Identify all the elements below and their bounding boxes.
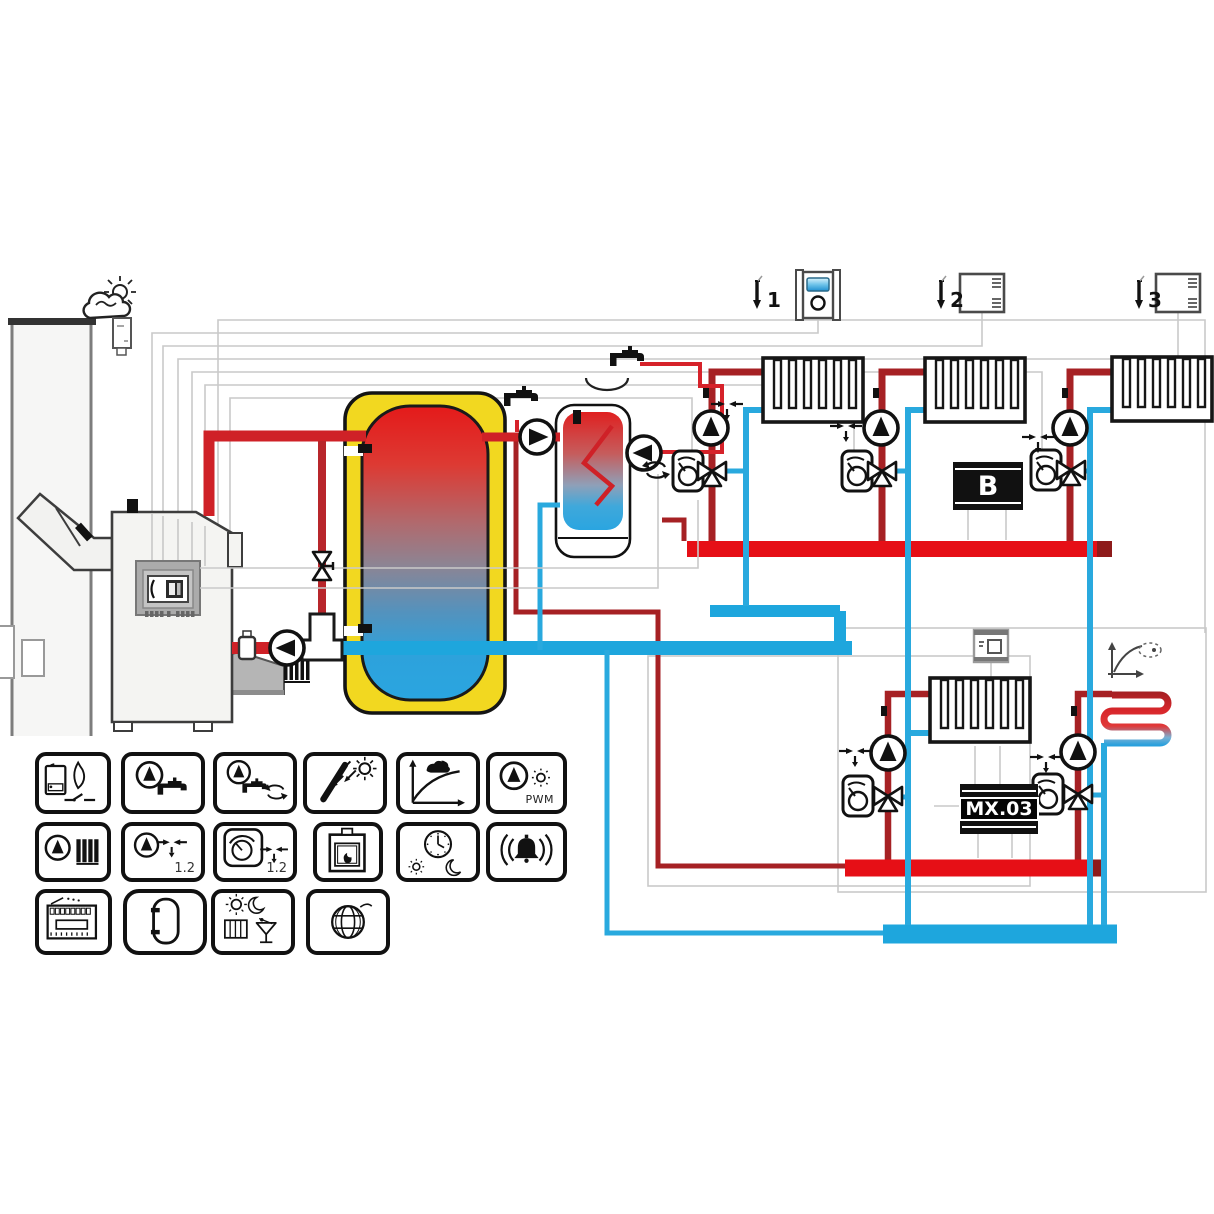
tile-internet [306,889,390,955]
circuit2-pump [864,411,898,445]
radiator-4 [930,678,1030,742]
tile-boiler-flame-contact [35,752,111,814]
circuit4-servo [843,776,873,816]
room-sensor-2 [937,274,1004,312]
controller-module-icon [39,893,108,951]
dhw-sensor [573,410,581,424]
tile-dhw-circulation [213,752,297,814]
room-sensor-3 [1135,274,1200,312]
boiler-sensor [127,499,138,513]
buffer-tank-icon [127,893,203,951]
comfort-day-night-party-icon [215,893,291,951]
tile-buffer [123,889,207,955]
heating-curve-icon [400,756,476,810]
radiator-1 [763,358,863,422]
hydraulic-diagram: B MX.03 1 2 3 [0,0,1214,1214]
extension-module-label: MX.03 [959,797,1038,822]
shut-off-valve [313,552,333,580]
alarm-icon [490,826,563,878]
heating-pump-radiator-icon [39,826,107,878]
room-controller-display [807,278,829,291]
return-fitting [239,631,255,659]
mix-label-1: 1.2 [174,861,195,876]
tile-comfort [211,889,295,955]
dhw-pump-circulation-icon [217,756,293,810]
controller-box-b-label: B [978,471,999,502]
sensor-2-number: 2 [950,288,964,312]
tile-pump-pwm: PWM [486,752,567,814]
diagram-canvas [0,0,1214,1214]
tap-icon-1 [504,386,538,406]
room-stat-lower [974,630,1008,662]
anti-condensation-fitting [302,614,342,660]
radiator-2 [925,358,1025,422]
circuit1-pump [694,411,728,445]
tile-fireplace [313,822,383,882]
circuit5-pump [1061,735,1095,769]
circuit3-pump [1053,411,1087,445]
tile-alarm [486,822,567,882]
dhw-charge-pump [520,420,554,454]
tile-heating-curve [396,752,480,814]
floor-heating-coil [1104,695,1168,743]
dhw-tank [556,405,630,557]
vent-icon-2 [830,423,862,442]
tile-thermostat-mix: 1.2 [213,822,297,882]
sensor-1-number: 1 [767,288,781,312]
buffer-tank [345,393,505,713]
circuit4-pump [871,736,905,770]
basin-icon [586,378,628,390]
tile-dhw-pump [121,752,205,814]
clock-day-night-icon [400,826,476,878]
sensor-3-number: 3 [1148,288,1162,312]
extension-module-box: MX.03 [960,784,1038,834]
weather-icon [84,276,136,318]
solar-collector-icon [307,756,383,810]
vent-icon-5 [1030,754,1062,773]
radiator-3 [1112,357,1212,421]
tile-pump-radiator [35,822,111,882]
internet-globe-icon [310,893,386,951]
pwm-label: PWM [525,793,554,806]
fireplace-icon [317,826,379,878]
vent-icon-4 [839,748,871,767]
tile-clock [396,822,480,882]
tile-pump-mix: 1.2 [121,822,205,882]
tap-icon-2 [610,346,644,366]
dhw-pump-tap-icon [125,756,201,810]
tile-module [35,889,112,955]
heating-curve-symbol [1108,642,1161,678]
mix-label-2: 1.2 [266,861,287,876]
controller-box-b: B [953,462,1023,510]
outdoor-sensor [113,318,131,355]
boiler-return-pump [270,631,304,665]
tile-solar [303,752,387,814]
boiler-flame-contact-icon [39,756,107,810]
boiler-controller [136,561,200,617]
